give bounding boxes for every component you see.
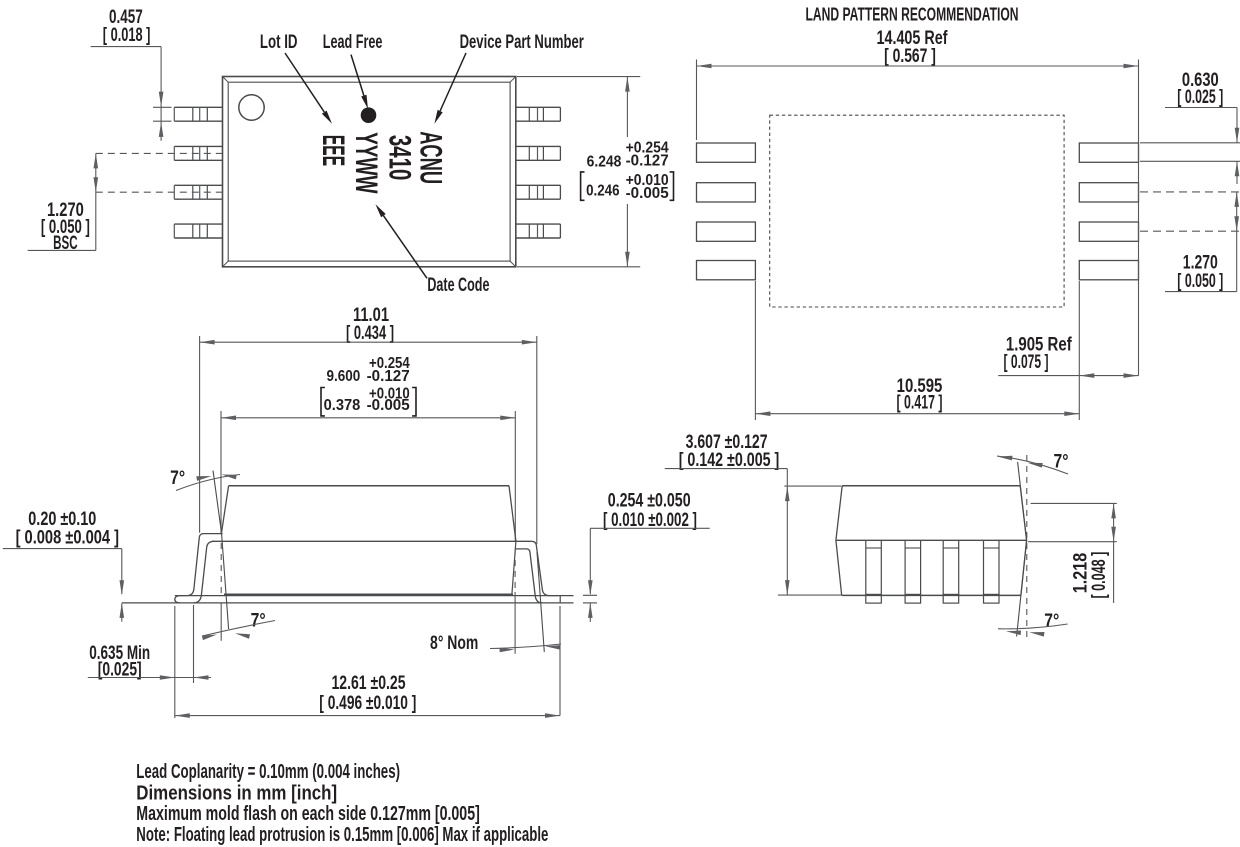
svg-text:-0.005: -0.005 (367, 397, 410, 414)
svg-text:9.600: 9.600 (327, 368, 361, 385)
svg-text:Device Part Number: Device Part Number (460, 32, 585, 53)
svg-text:[ 0.025 ]: [ 0.025 ] (1177, 87, 1223, 108)
svg-text:[ 0.417 ]: [ 0.417 ] (897, 393, 943, 414)
svg-text:Maximum mold flash on each sid: Maximum mold flash on each side 0.127mm … (136, 803, 480, 825)
svg-text:ACNU: ACNU (414, 131, 450, 184)
svg-text:8° Nom: 8° Nom (430, 633, 478, 654)
svg-text:Lot ID: Lot ID (260, 32, 298, 53)
svg-text:0.378: 0.378 (324, 397, 361, 414)
svg-text:Lead Coplanarity = 0.10mm (0.0: Lead Coplanarity = 0.10mm (0.004 inches) (136, 761, 400, 783)
svg-text:7°: 7° (1044, 611, 1059, 632)
svg-text:0.254 ±0.050: 0.254 ±0.050 (608, 491, 691, 512)
svg-text:7°: 7° (251, 611, 266, 632)
svg-text:0.246: 0.246 (586, 182, 620, 199)
svg-text:7°: 7° (170, 468, 185, 489)
svg-text:-0.127: -0.127 (367, 368, 410, 385)
svg-text:[ 0.567 ]: [ 0.567 ] (884, 46, 936, 67)
svg-text:[ 0.018 ]: [ 0.018 ] (103, 25, 151, 46)
svg-text:[ 0.048 ]: [ 0.048 ] (1089, 552, 1110, 599)
svg-text:-0.127: -0.127 (626, 153, 669, 170)
svg-text:12.61 ±0.25: 12.61 ±0.25 (332, 673, 406, 694)
svg-text:[ 0.142 ±0.005 ]: [ 0.142 ±0.005 ] (679, 450, 780, 471)
svg-text:Lead Free: Lead Free (323, 32, 383, 53)
svg-text:Date Code: Date Code (427, 275, 489, 296)
svg-text:[ 0.434 ]: [ 0.434 ] (346, 323, 394, 344)
svg-text:YYWW: YYWW (349, 132, 385, 194)
svg-text:[ 0.075 ]: [ 0.075 ] (1004, 352, 1049, 373)
svg-text:[ 0.050 ]: [ 0.050 ] (1177, 271, 1223, 292)
svg-text:-0.005: -0.005 (626, 185, 669, 202)
svg-text:EEE: EEE (316, 135, 352, 166)
svg-text:LAND PATTERN RECOMMENDATION: LAND PATTERN RECOMMENDATION (806, 3, 1019, 24)
svg-text:3410: 3410 (382, 135, 418, 180)
svg-text:6.248: 6.248 (587, 154, 622, 171)
svg-text:[ 0.496 ±0.010 ]: [ 0.496 ±0.010 ] (319, 693, 416, 714)
svg-text:[ 0.008 ±0.004 ]: [ 0.008 ±0.004 ] (16, 528, 119, 549)
svg-text:Note: Floating lead protrusion: Note: Floating lead protrusion is 0.15mm… (136, 824, 548, 846)
svg-text:Dimensions in mm [inch]: Dimensions in mm [inch] (136, 782, 337, 804)
